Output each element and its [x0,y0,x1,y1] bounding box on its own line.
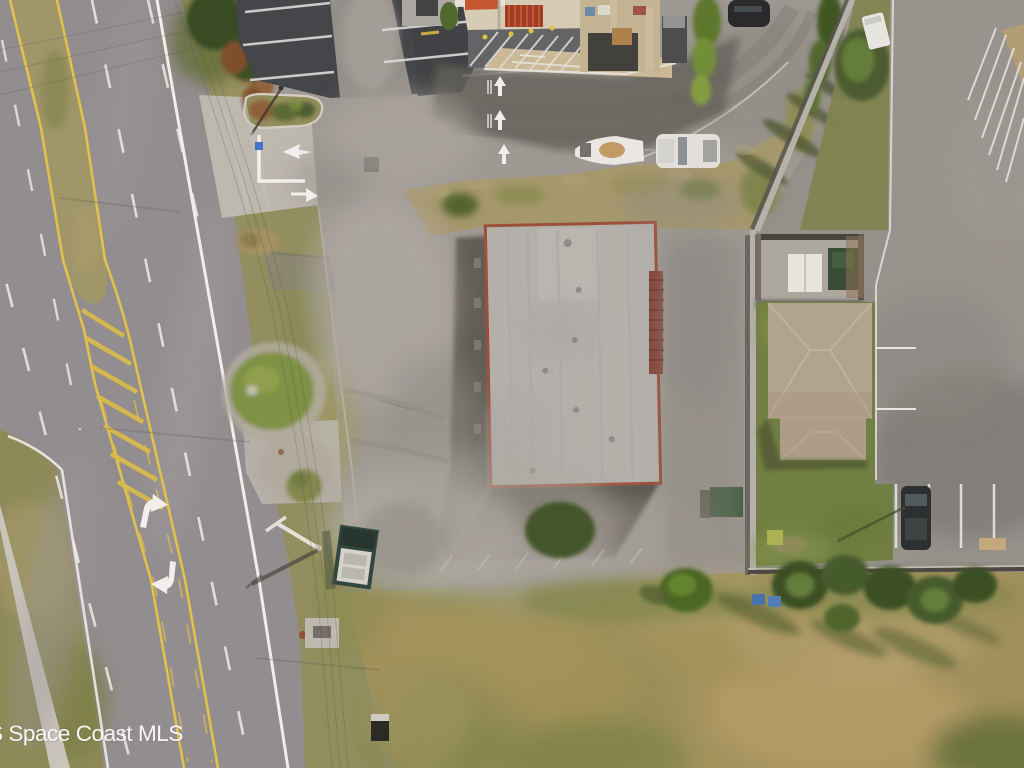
svg-text:S Space Coast MLS: S Space Coast MLS [0,721,183,746]
